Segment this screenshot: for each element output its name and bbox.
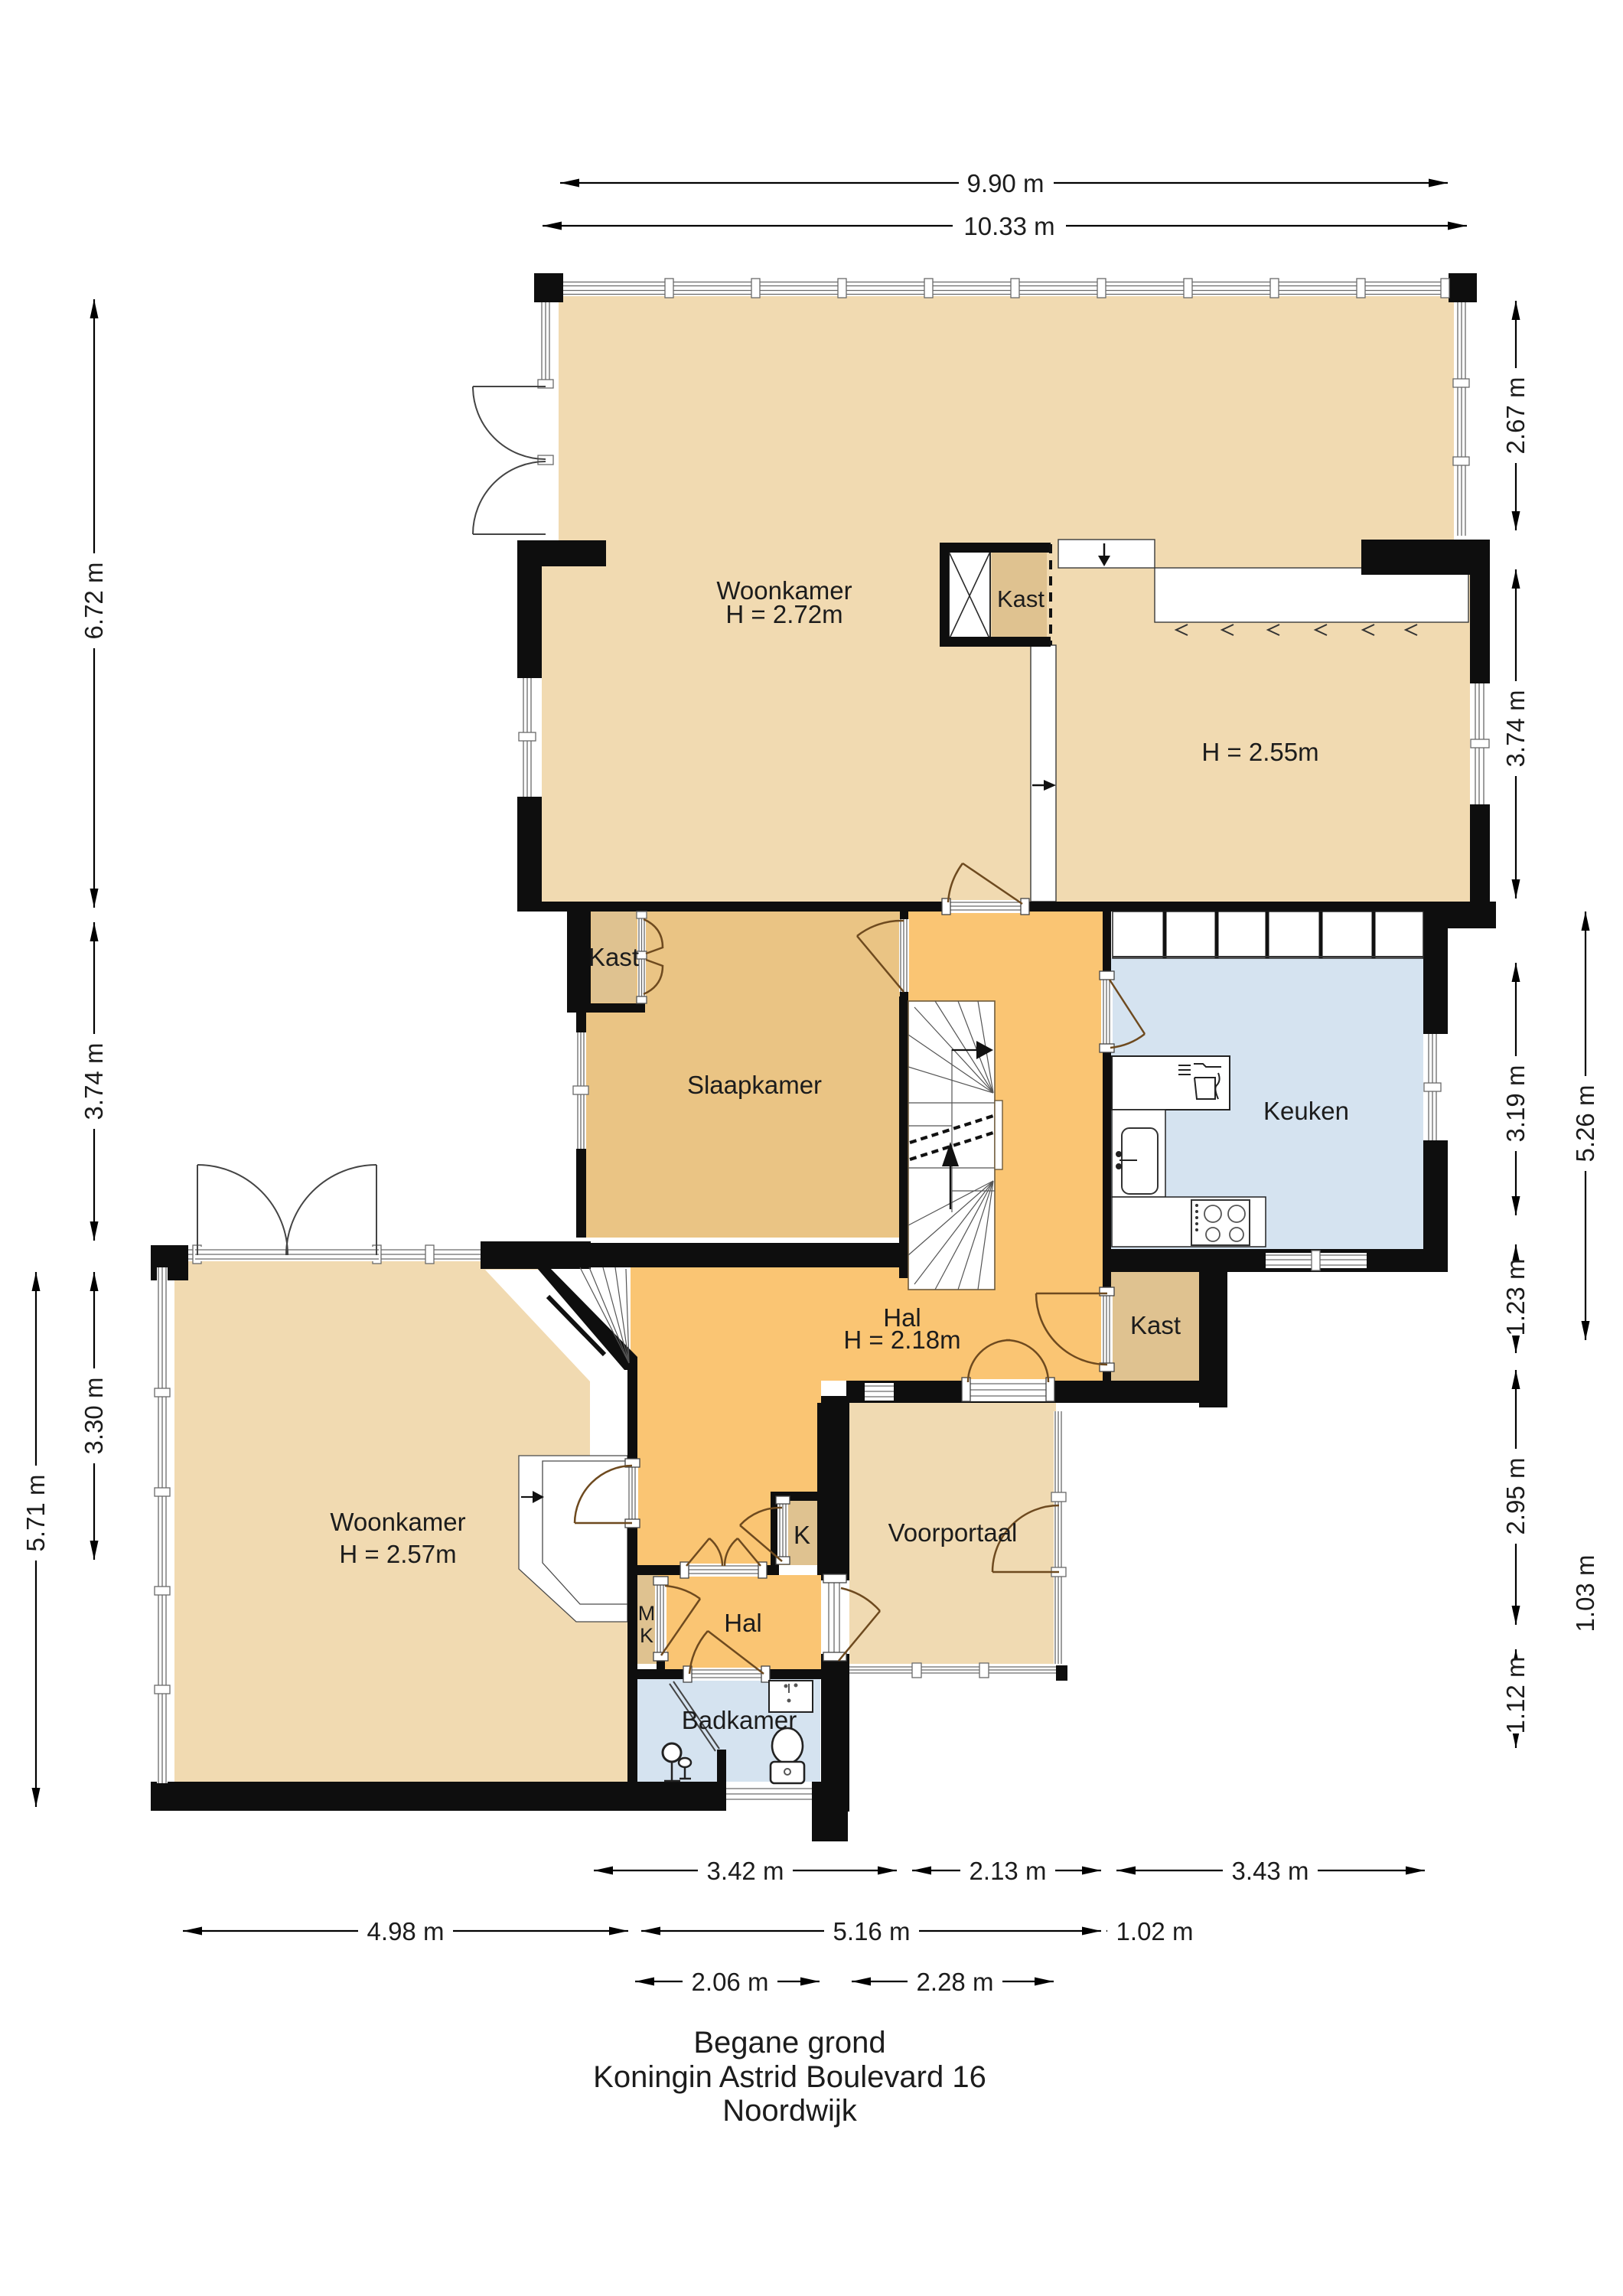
svg-text:Slaapkamer: Slaapkamer xyxy=(687,1071,822,1099)
svg-text:1.02 m: 1.02 m xyxy=(1116,1917,1194,1945)
svg-text:5.71 m: 5.71 m xyxy=(21,1475,50,1552)
svg-text:H = 2.72m: H = 2.72m xyxy=(725,600,842,628)
svg-text:H = 2.57m: H = 2.57m xyxy=(339,1540,456,1568)
svg-text:Kast: Kast xyxy=(997,585,1045,612)
svg-text:2.06 m: 2.06 m xyxy=(692,1968,769,1996)
svg-text:Badkamer: Badkamer xyxy=(682,1706,797,1734)
svg-text:K: K xyxy=(640,1624,653,1647)
svg-text:Kast: Kast xyxy=(1130,1311,1181,1339)
svg-text:2.28 m: 2.28 m xyxy=(917,1968,994,1996)
svg-text:6.72 m: 6.72 m xyxy=(80,563,108,640)
svg-text:3.74 m: 3.74 m xyxy=(1501,690,1530,768)
svg-text:1.23 m: 1.23 m xyxy=(1501,1259,1530,1336)
svg-text:2.13 m: 2.13 m xyxy=(970,1857,1047,1885)
svg-text:5.26 m: 5.26 m xyxy=(1571,1085,1599,1163)
svg-text:9.90 m: 9.90 m xyxy=(967,169,1045,197)
svg-text:4.98 m: 4.98 m xyxy=(367,1917,445,1945)
svg-text:1.12 m: 1.12 m xyxy=(1501,1657,1530,1734)
svg-text:H = 2.55m: H = 2.55m xyxy=(1201,738,1318,766)
svg-text:K: K xyxy=(794,1521,810,1549)
svg-text:H = 2.18m: H = 2.18m xyxy=(843,1326,960,1354)
svg-text:2.67 m: 2.67 m xyxy=(1501,377,1530,455)
svg-text:Koningin Astrid Boulevard 16: Koningin Astrid Boulevard 16 xyxy=(593,2060,986,2094)
svg-text:Voorportaal: Voorportaal xyxy=(888,1518,1018,1547)
svg-text:1.03 m: 1.03 m xyxy=(1571,1555,1599,1632)
svg-text:3.19 m: 3.19 m xyxy=(1501,1065,1530,1143)
svg-text:Begane grond: Begane grond xyxy=(693,2026,885,2060)
svg-text:M: M xyxy=(638,1602,656,1625)
svg-text:3.42 m: 3.42 m xyxy=(707,1857,784,1885)
svg-text:2.95 m: 2.95 m xyxy=(1501,1458,1530,1535)
svg-text:Noordwijk: Noordwijk xyxy=(722,2094,858,2128)
svg-text:Keuken: Keuken xyxy=(1263,1097,1349,1125)
svg-text:Hal: Hal xyxy=(724,1609,762,1637)
svg-text:5.16 m: 5.16 m xyxy=(833,1917,911,1945)
svg-text:10.33 m: 10.33 m xyxy=(963,212,1054,240)
svg-text:3.30 m: 3.30 m xyxy=(80,1378,108,1455)
svg-text:3.43 m: 3.43 m xyxy=(1232,1857,1309,1885)
svg-text:Woonkamer: Woonkamer xyxy=(330,1508,465,1536)
svg-text:Kast: Kast xyxy=(588,943,639,971)
svg-text:3.74 m: 3.74 m xyxy=(80,1043,108,1120)
